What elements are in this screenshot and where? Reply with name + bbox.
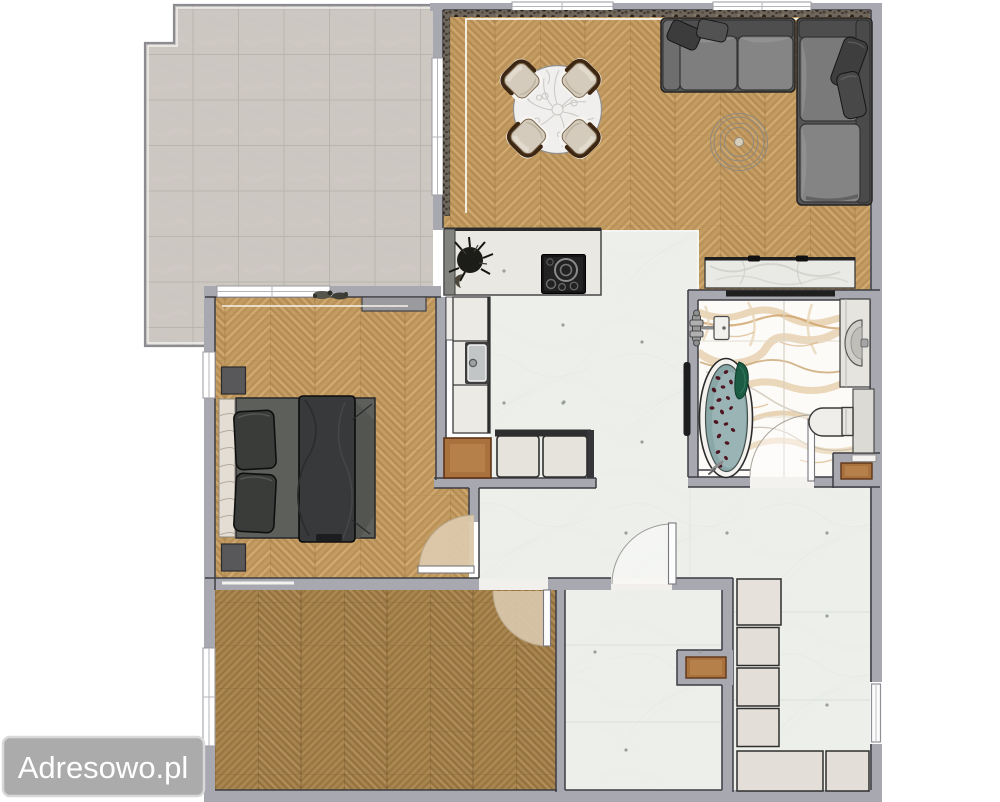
svg-text:Adresowo.pl: Adresowo.pl: [18, 750, 189, 785]
